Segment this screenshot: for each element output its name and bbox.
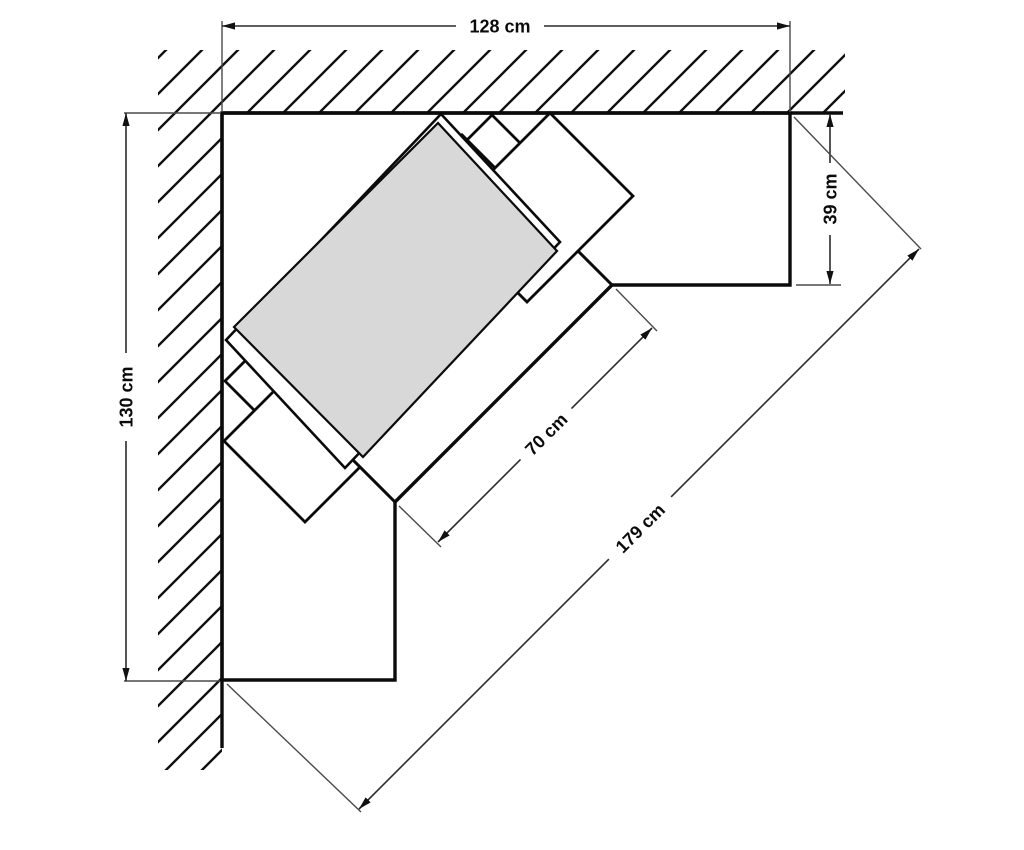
dimension-label-top: 128 cm xyxy=(469,17,530,37)
extension-line xyxy=(616,289,657,331)
dimension-label-diagonal: 179 cm xyxy=(612,500,669,557)
dimension-side-depth: 39 cm xyxy=(796,114,842,285)
dimension-label-right: 39 cm xyxy=(821,173,841,224)
diagram-canvas: 128 cm 130 cm 39 cm xyxy=(0,0,1024,850)
corner-unit-dimension-diagram: 128 cm 130 cm 39 cm xyxy=(0,0,1024,850)
extension-line xyxy=(794,117,921,249)
extension-line xyxy=(227,684,361,812)
extension-line xyxy=(399,506,441,547)
dimension-label-left: 130 cm xyxy=(117,366,137,427)
